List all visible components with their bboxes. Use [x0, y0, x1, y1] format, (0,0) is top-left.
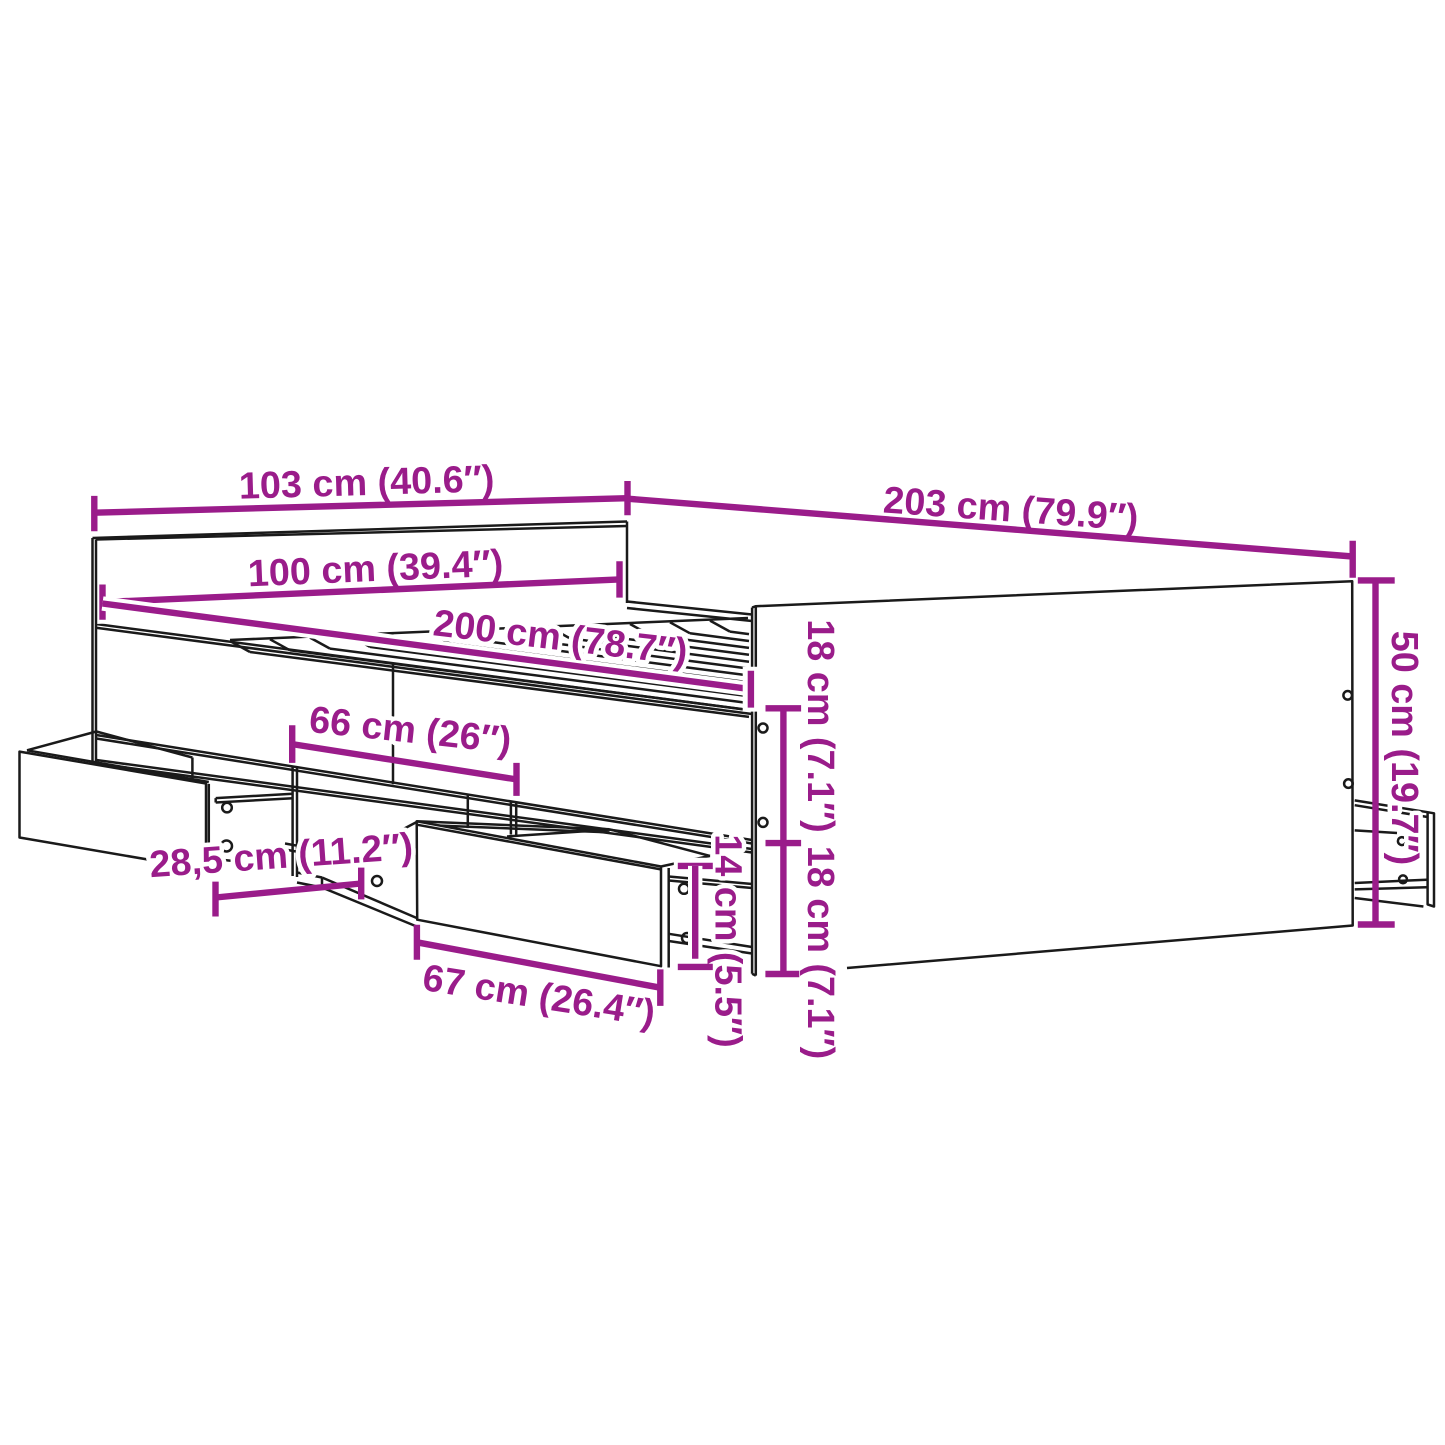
- svg-text:18 cm (7.1″): 18 cm (7.1″): [799, 846, 841, 1060]
- svg-text:18 cm (7.1″): 18 cm (7.1″): [799, 619, 841, 833]
- svg-text:50 cm (19.7″): 50 cm (19.7″): [1383, 631, 1425, 866]
- svg-text:103 cm (40.6″): 103 cm (40.6″): [238, 458, 495, 508]
- svg-text:14 cm (5.5″): 14 cm (5.5″): [707, 834, 749, 1048]
